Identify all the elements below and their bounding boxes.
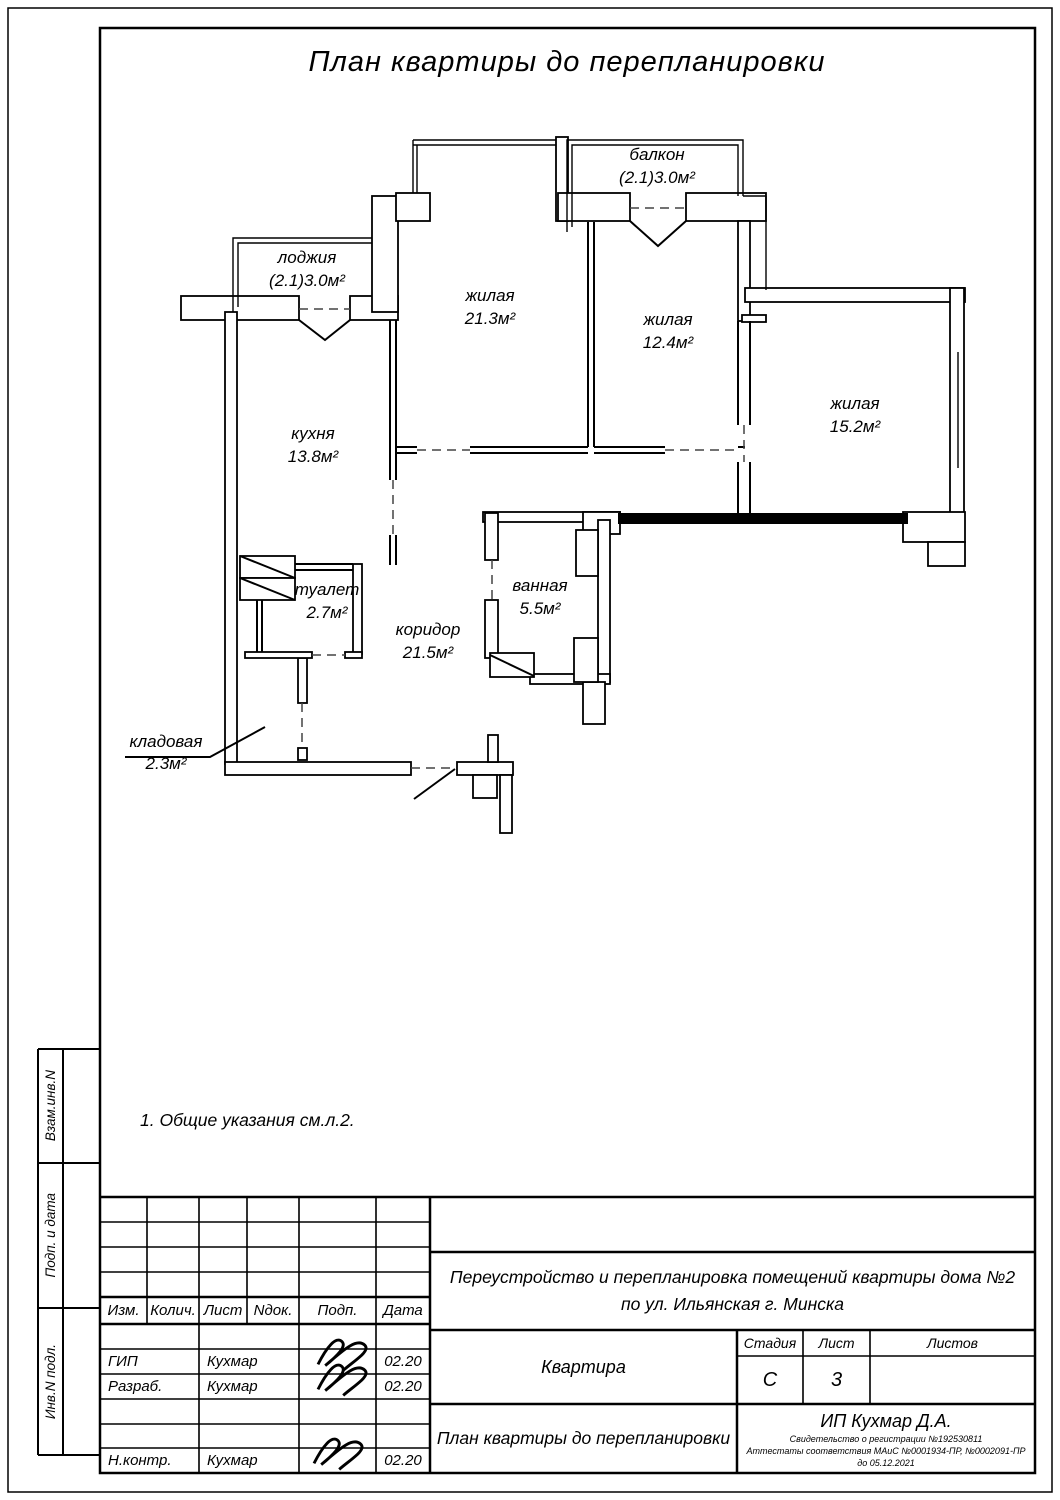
row-gip-name: Кухмар [199,1349,307,1374]
project-line2: по ул. Ильянская г. Минска [621,1291,844,1318]
room-area: 2.7м² [295,601,360,624]
col-header-kolich: Колич. [147,1297,199,1324]
room-name: кухня [291,424,334,443]
room-area: 5.5м² [512,597,567,620]
col-header-list: Лист [199,1297,247,1324]
sidebar-label: Подп. и дата [43,1193,58,1278]
row-gip-date: 02.20 [376,1349,430,1374]
drawing-sheet: План квартиры до перепланировки балкон (… [0,0,1060,1500]
company-cert3: до 05.12.2021 [857,1457,915,1469]
signatures [314,1340,366,1469]
sheet-label: Лист [803,1330,870,1356]
stage-label: Стадия [737,1330,803,1356]
row-razrab-date: 02.20 [376,1374,430,1399]
room-area: 21.5м² [396,641,461,664]
sidebar-label: Взам.инв.N [43,1070,58,1141]
drawing-title: План квартиры до перепланировки [430,1404,737,1473]
row-gip-role: ГИП [100,1349,207,1374]
room-area: 15.2м² [830,415,880,438]
room-label-lodzhiya: лоджия (2.1)3.0м² [269,246,345,292]
thick-wall-band [618,513,908,524]
room-label-zhilaya-12: жилая 12.4м² [643,308,693,354]
row-razrab-name: Кухмар [199,1374,307,1399]
room-label-koridor: коридор 21.5м² [396,618,461,664]
row-nkontr-name: Кухмар [199,1448,307,1473]
room-name: ванная [512,576,567,595]
room-area: 2.3м² [130,753,203,775]
col-header-podp: Подп. [299,1297,376,1324]
room-name: туалет [295,580,360,599]
room-label-kuhnya: кухня 13.8м² [288,422,338,468]
signature-gip [318,1340,366,1370]
col-header-izm: Изм. [100,1297,147,1324]
col-header-ndok: Nдок. [247,1297,299,1324]
sheet-value: 3 [803,1356,870,1404]
room-name: жилая [830,394,879,413]
row-nkontr-date: 02.20 [376,1448,430,1473]
col-header-data: Дата [376,1297,430,1324]
sheets-label: Листов [870,1330,1035,1356]
room-area: (2.1)3.0м² [619,166,695,189]
signature-nkontr [314,1439,362,1469]
sidebar-cell-inv: Инв.N подл. [38,1308,63,1455]
company-name: ИП Кухмар Д.А. [820,1409,951,1433]
room-area: 12.4м² [643,331,693,354]
sheets-value [870,1356,1035,1404]
room-label-vannaya: ванная 5.5м² [512,574,567,620]
company-cert2: Аттестаты соответствия МАиС №0001934-ПР,… [747,1445,1026,1457]
room-label-zhilaya-21: жилая 21.3м² [465,284,515,330]
room-name: жилая [643,310,692,329]
room-label-tualet: туалет 2.7м² [295,578,360,624]
room-label-kladovaya: кладовая 2.3м² [130,731,203,775]
floor-plan-walls [181,137,965,833]
room-name: жилая [465,286,514,305]
company-block: ИП Кухмар Д.А. Свидетельство о регистрац… [737,1404,1035,1473]
object-name: Квартира [430,1330,737,1404]
sidebar-cell-vzam: Взам.инв.N [38,1049,63,1163]
project-line1: Переустройство и перепланировка помещени… [450,1264,1015,1291]
row-nkontr-role: Н.контр. [100,1448,207,1473]
project-name: Переустройство и перепланировка помещени… [430,1252,1035,1330]
general-note: 1. Общие указания см.л.2. [140,1110,355,1131]
page-title: План квартиры до перепланировки [308,46,825,79]
signature-razrab [318,1365,366,1395]
room-area: 13.8м² [288,445,338,468]
stage-value: С [737,1356,803,1404]
room-name: балкон [629,145,684,164]
room-area: 21.3м² [465,307,515,330]
room-name: лоджия [278,248,337,267]
room-label-balkon: балкон (2.1)3.0м² [619,143,695,189]
floor-plan-openings [299,208,744,768]
room-name: кладовая [130,732,203,751]
company-cert1: Свидетельство о регистрации №192530811 [790,1433,983,1445]
sidebar-label: Инв.N подл. [43,1344,58,1419]
room-area: (2.1)3.0м² [269,269,345,292]
room-label-zhilaya-15: жилая 15.2м² [830,392,880,438]
row-razrab-role: Разраб. [100,1374,207,1399]
sidebar-cell-podp: Подп. и дата [38,1163,63,1308]
room-name: коридор [396,620,461,639]
